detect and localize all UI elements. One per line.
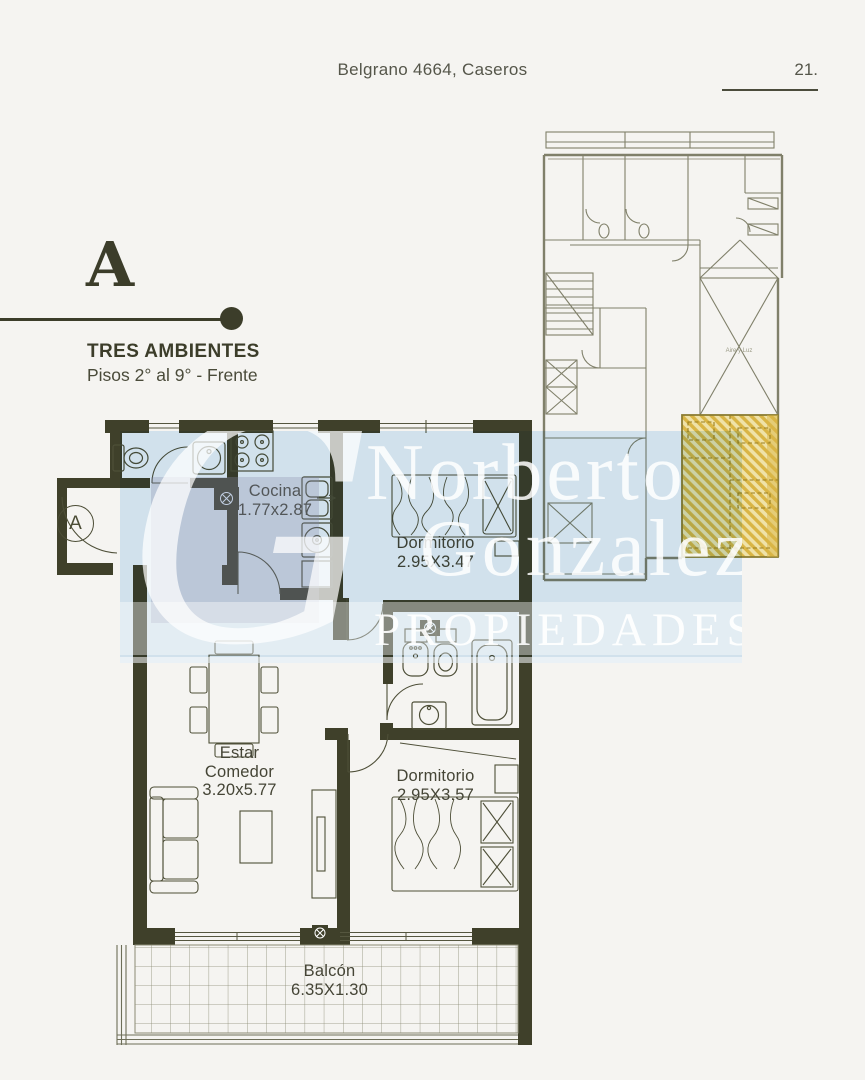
living-name-line2: Comedor [182,763,297,782]
living-dims: 3.20x5.77 [182,781,297,800]
entrance-unit-marker: A [57,505,94,542]
unit-letter: A [86,234,134,296]
label-living: Estar Comedor 3.20x5.77 [182,744,297,800]
page-number: 21. [794,60,818,80]
leader-line [0,318,224,321]
unit-floors-subtitle: Pisos 2° al 9° - Frente [87,365,258,386]
label-bedroom1: Dormitorio 2.95X3.47 [383,534,488,571]
label-bedroom2: Dormitorio 2.95X3.57 [383,767,488,804]
balcony-dims: 6.35X1.30 [262,981,397,1000]
bedroom2-name: Dormitorio [383,767,488,786]
leader-dot [220,307,243,330]
label-balcony: Balcón 6.35X1.30 [262,962,397,999]
light-well-label: Aire y Luz [726,348,753,354]
unit-type-title: TRES AMBIENTES [87,341,260,363]
living-name-line1: Estar [182,744,297,763]
kitchen-name: Cocina [225,482,325,501]
bedroom2-dims: 2.95X3.57 [383,786,488,805]
address-title: Belgrano 4664, Caseros [0,60,865,80]
bathroom2-fixtures [403,629,512,729]
label-kitchen: Cocina 1.77x2.87 [225,482,325,519]
kitchen-dims: 1.77x2.87 [225,501,325,520]
page-number-rule [722,89,818,91]
keyplan-drawing: Aire y Luz [540,128,790,583]
floorplan-page: Belgrano 4664, Caseros 21. A TRES AMBIEN… [0,0,865,1080]
bedroom1-dims: 2.95X3.47 [383,553,488,572]
balcony-name: Balcón [262,962,397,981]
bathroom1-fixtures [113,442,225,474]
bedroom1-name: Dormitorio [383,534,488,553]
